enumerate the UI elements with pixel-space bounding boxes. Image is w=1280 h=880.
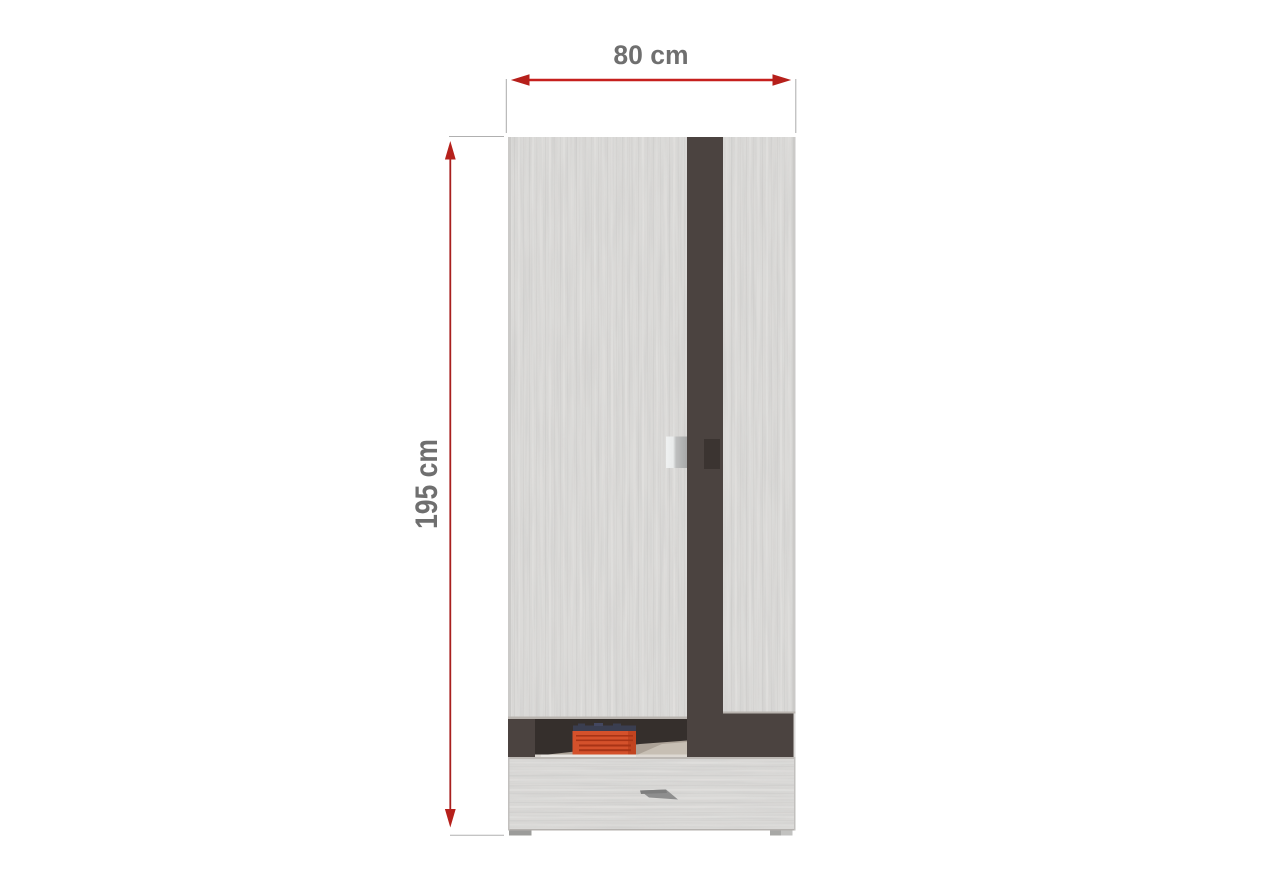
svg-text:80 cm: 80 cm (613, 40, 688, 70)
svg-text:195 cm: 195 cm (410, 439, 445, 529)
